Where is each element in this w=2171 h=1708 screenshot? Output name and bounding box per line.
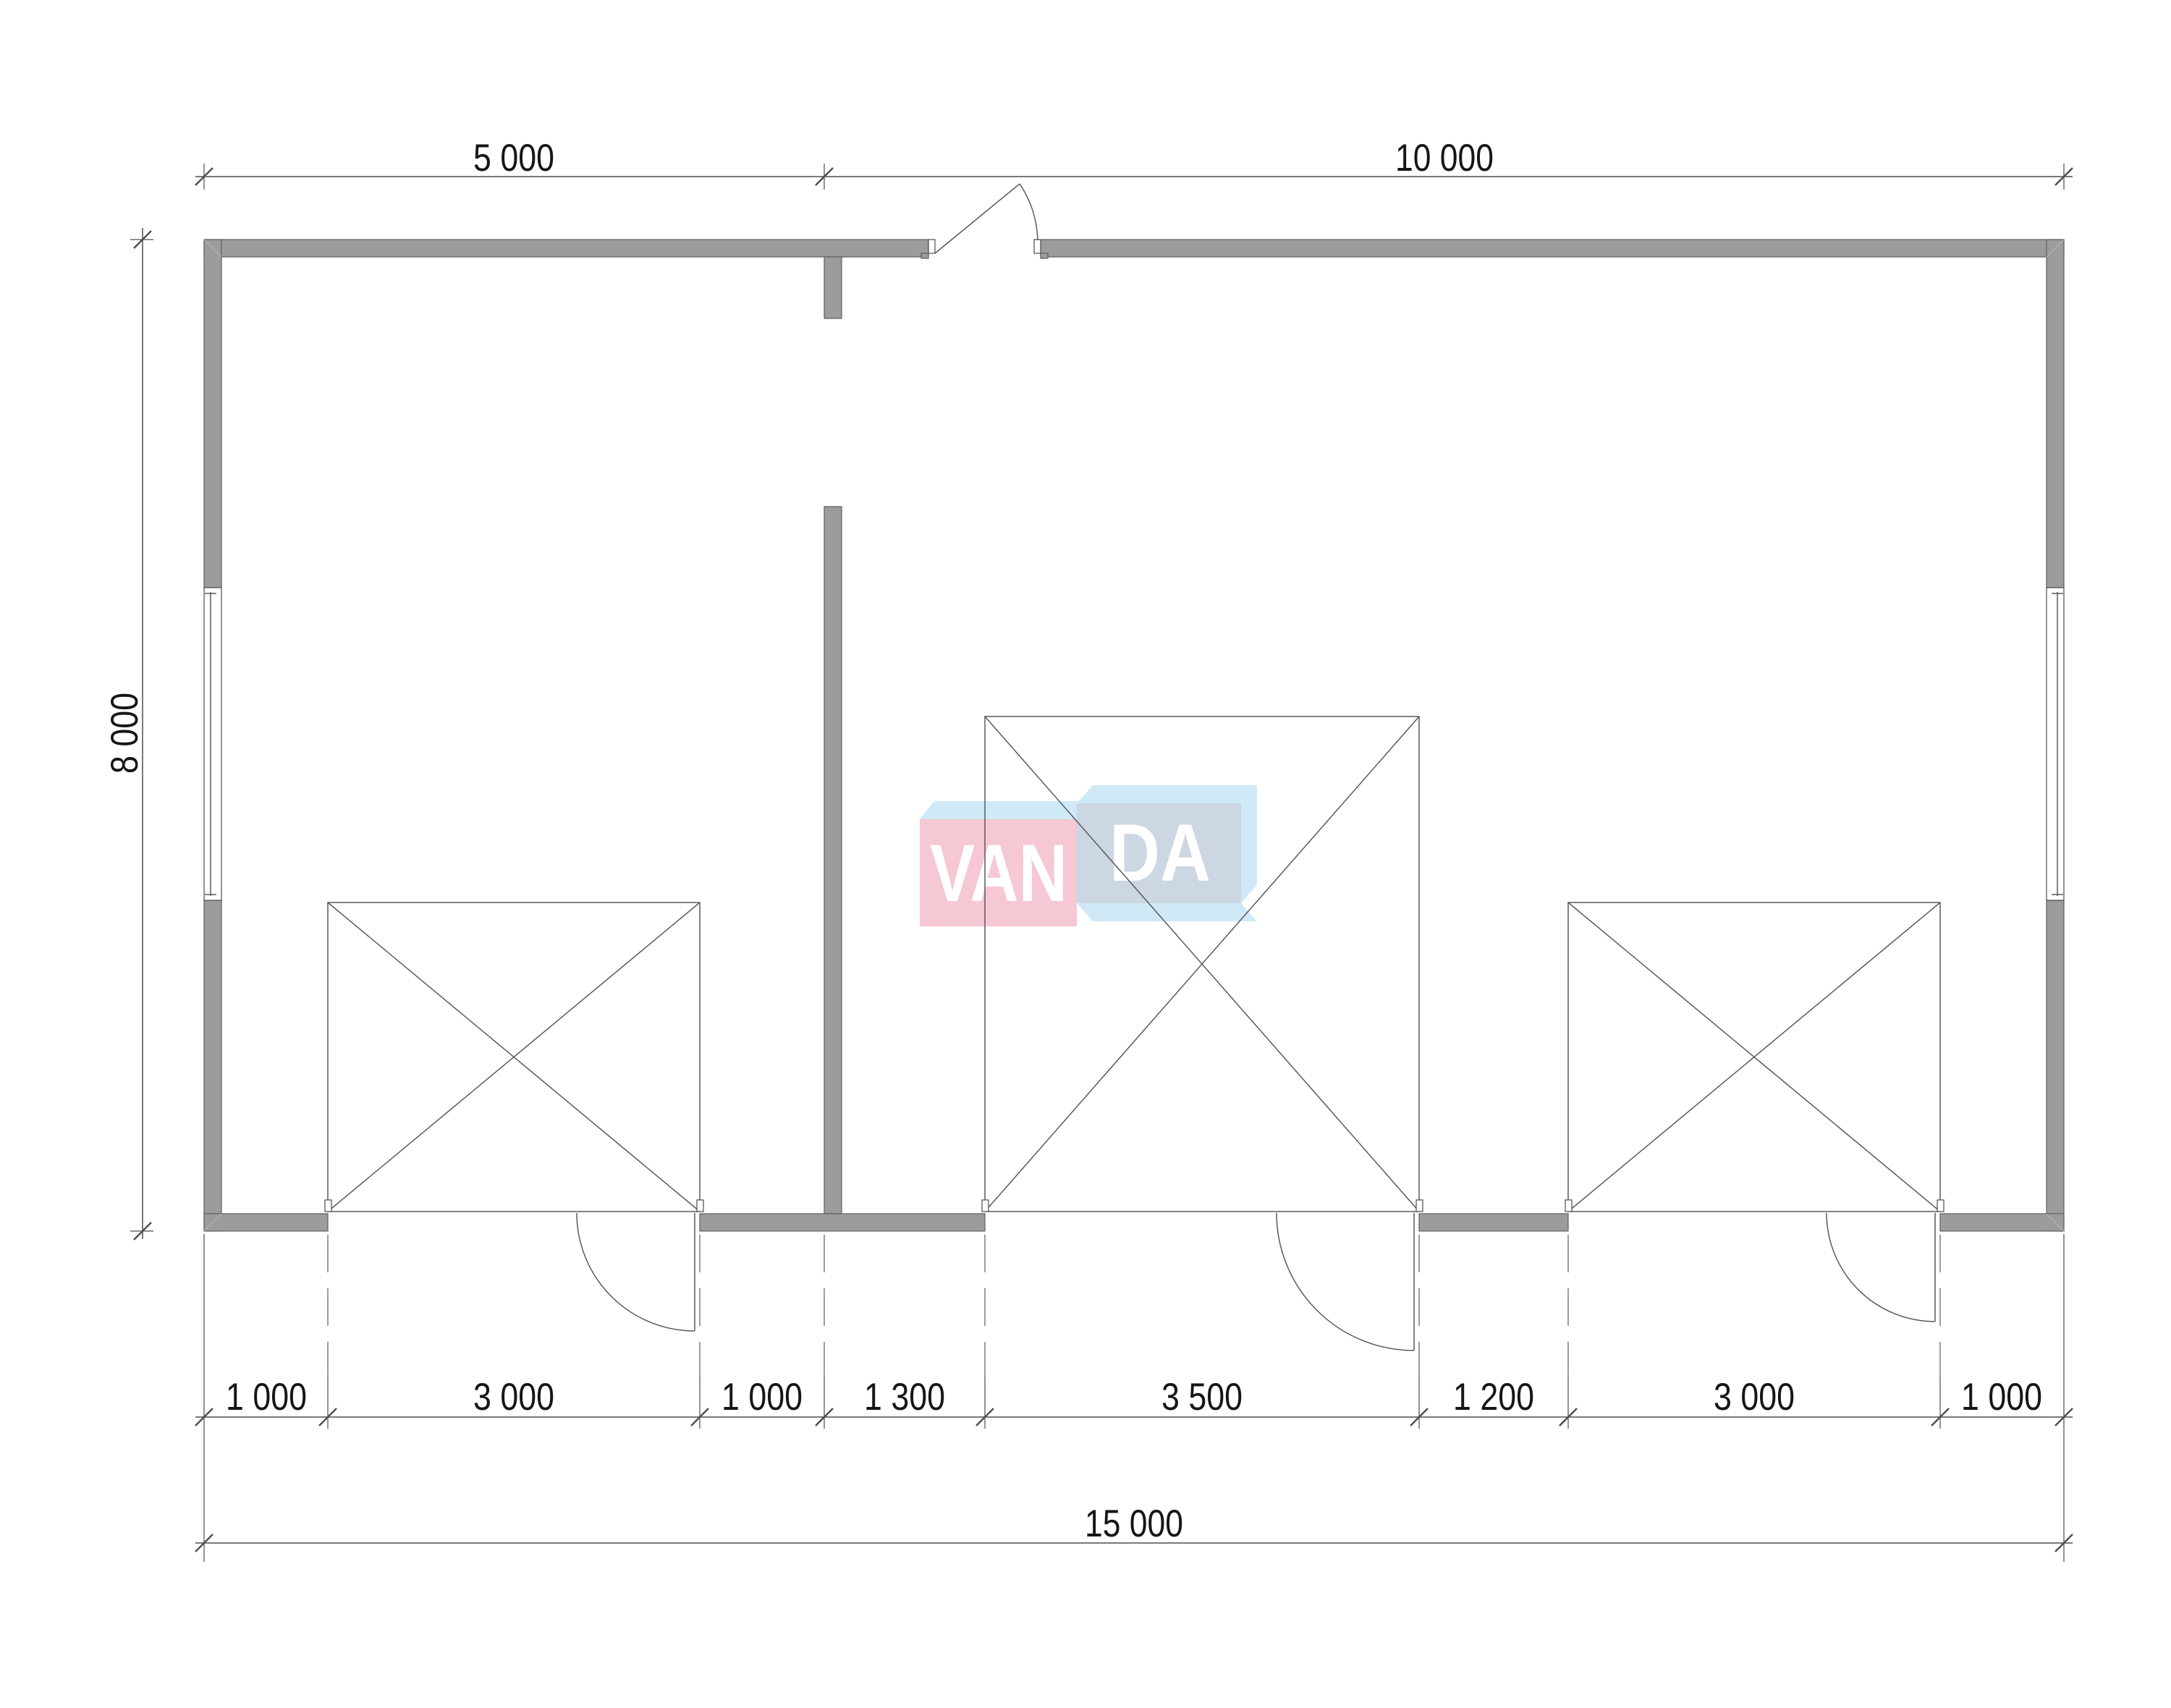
logo-text-da: DA — [1109, 808, 1211, 898]
bottom-wall-segment-3 — [1419, 1214, 1568, 1231]
logo-blue-top-face — [1077, 785, 1257, 803]
entrance-door-swing-arc — [1020, 184, 1038, 240]
entrance-door-right-nib — [1041, 253, 1048, 258]
left-window — [204, 588, 221, 900]
top-dimension-string: 5 000 10 000 — [195, 137, 2073, 190]
logo-blue-right-face — [1241, 785, 1257, 903]
garage-opening-right — [1565, 902, 1944, 1322]
dim-label-seg-4: 1 300 — [864, 1376, 945, 1419]
garage-left-door-arc — [577, 1213, 695, 1331]
bottom-dashed-projection-lines — [328, 1235, 1940, 1377]
logo-red-top-face — [920, 801, 1091, 819]
right-wall-lower-segment — [2047, 900, 2064, 1231]
top-wall-right-segment — [1041, 240, 2064, 257]
bottom-dimension-strings: 1 000 3 000 1 000 1 300 3 500 1 200 3 00… — [195, 1234, 2073, 1562]
dim-label-total-15000: 15 000 — [1085, 1502, 1183, 1545]
top-wall-left-segment — [204, 240, 928, 257]
dim-label-seg-5: 3 500 — [1161, 1376, 1243, 1419]
dim-label-seg-7: 3 000 — [1714, 1376, 1795, 1419]
dim-label-side-8000: 8 000 — [103, 693, 146, 774]
entrance-door-right-jamb — [1034, 240, 1041, 253]
dim-label-seg-3: 1 000 — [721, 1376, 803, 1419]
partition-wall-main — [824, 507, 842, 1214]
bottom-segment-labels: 1 000 3 000 1 000 1 300 3 500 1 200 3 00… — [226, 1376, 2042, 1419]
bottom-wall-segment-1 — [204, 1214, 328, 1231]
garage-opening-left — [325, 902, 703, 1331]
bottom-wall-segment-2 — [700, 1214, 985, 1231]
entrance-door-leaf — [935, 184, 1020, 253]
entrance-door-left-jamb — [928, 240, 935, 253]
left-dimension-string: 8 000 — [103, 228, 153, 1240]
partition-wall-stub — [824, 257, 842, 318]
left-wall-upper-segment — [204, 240, 221, 588]
dim-label-seg-1: 1 000 — [226, 1376, 307, 1419]
dim-label-seg-2: 3 000 — [473, 1376, 554, 1419]
right-window — [2047, 588, 2064, 900]
dim-label-top-10000: 10 000 — [1395, 137, 1494, 179]
floor-plan-canvas: VAN DA — [0, 0, 2171, 1708]
left-wall-lower-segment — [204, 900, 221, 1231]
logo-blue-bottom-face — [1077, 903, 1257, 921]
vanda-logo-watermark: VAN DA — [920, 785, 1257, 926]
entrance-door — [921, 184, 1048, 258]
garage-right-door-arc — [1827, 1213, 1935, 1322]
logo-text-van: VAN — [930, 828, 1067, 918]
right-wall-upper-segment — [2047, 240, 2064, 588]
dim-label-seg-8: 1 000 — [1961, 1376, 2042, 1419]
bottom-wall-segment-4 — [1940, 1214, 2064, 1231]
dim-label-seg-6: 1 200 — [1453, 1376, 1534, 1419]
entrance-door-left-nib — [921, 253, 928, 258]
garage-middle-door-arc — [1277, 1213, 1414, 1350]
floor-plan-sheet: VAN DA — [0, 0, 2171, 1708]
dim-label-top-5000: 5 000 — [473, 137, 554, 179]
